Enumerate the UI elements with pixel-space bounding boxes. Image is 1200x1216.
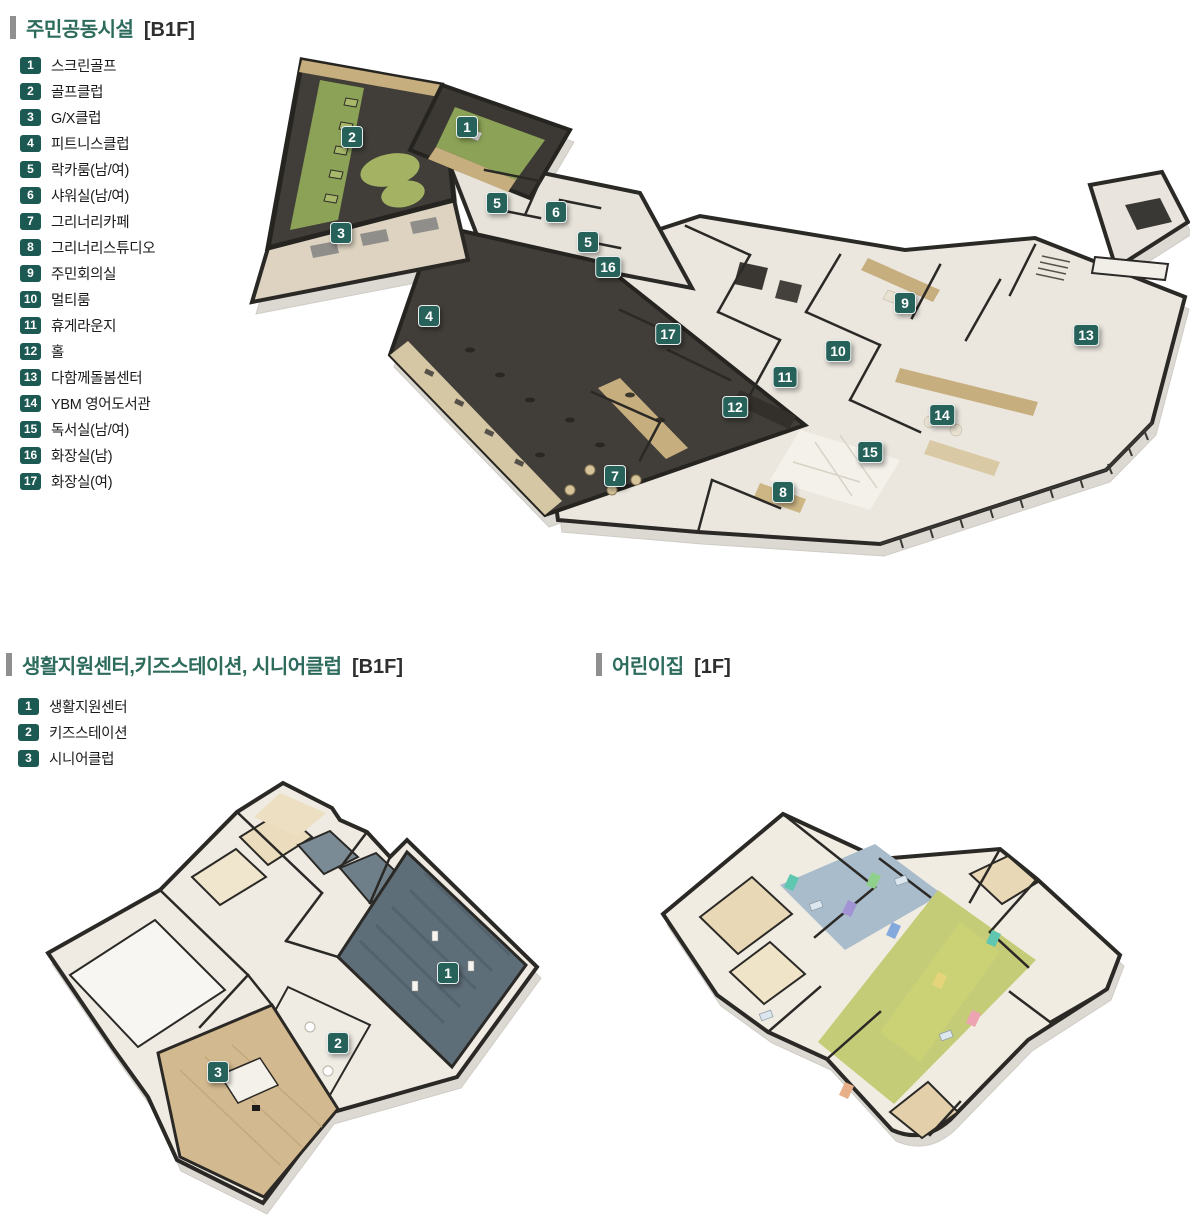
header-accent-bar (10, 16, 16, 39)
legend-number-badge: 3 (18, 750, 39, 767)
legend-number-badge: 2 (20, 83, 41, 100)
legend-item: 10 멀티룸 (20, 290, 155, 308)
plan-badge: 17 (655, 323, 681, 345)
legend-number-badge: 8 (20, 239, 41, 256)
legend-number-badge: 13 (20, 369, 41, 386)
legend-item: 2 키즈스테이션 (18, 723, 127, 741)
legend-item: 2 골프클럽 (20, 82, 155, 100)
community-floorplan-illustration (240, 50, 1190, 580)
legend-label: 키즈스테이션 (49, 722, 127, 743)
support-section-floor: [B1F] (352, 656, 403, 678)
community-floorplan: 12345651617910111213141587 (240, 50, 1190, 580)
legend-number-badge: 4 (20, 135, 41, 152)
legend-number-badge: 9 (20, 265, 41, 282)
legend-label: 그리너리카페 (51, 211, 129, 232)
community-section-header: 주민공동시설 [B1F] (10, 13, 195, 42)
plan-badge: 4 (418, 305, 440, 327)
community-section-floor: [B1F] (144, 19, 195, 41)
legend-number-badge: 16 (20, 447, 41, 464)
legend-number-badge: 14 (20, 395, 41, 412)
plan-badge: 6 (545, 201, 567, 223)
legend-label: 그리너리스튜디오 (51, 237, 155, 258)
plan-badge: 1 (437, 962, 459, 984)
legend-item: 8 그리너리스튜디오 (20, 238, 155, 256)
plan-badge: 9 (894, 292, 916, 314)
support-legend: 1 생활지원센터 2 키즈스테이션 3 시니어클럽 (18, 697, 127, 767)
plan-badge: 2 (327, 1032, 349, 1054)
header-accent-bar (596, 653, 602, 676)
plan-badge: 15 (857, 441, 883, 463)
legend-item: 3 G/X클럽 (20, 108, 155, 126)
plan-badge: 1 (456, 116, 478, 138)
legend-item: 1 스크린골프 (20, 56, 155, 74)
support-section-title: 생활지원센터,키즈스테이션, 시니어클럽 (22, 656, 341, 678)
legend-label: 시니어클럽 (49, 748, 114, 769)
legend-item: 3 시니어클럽 (18, 749, 127, 767)
legend-number-badge: 6 (20, 187, 41, 204)
legend-item: 4 피트니스클럽 (20, 134, 155, 152)
plan-badge: 16 (595, 256, 621, 278)
plan-badge: 7 (604, 465, 626, 487)
legend-label: 피트니스클럽 (51, 133, 129, 154)
legend-number-badge: 5 (20, 161, 41, 178)
legend-number-badge: 7 (20, 213, 41, 230)
plan-badge: 8 (772, 481, 794, 503)
legend-number-badge: 10 (20, 291, 41, 308)
legend-label: 화장실(남) (51, 445, 112, 466)
header-accent-bar (6, 653, 12, 676)
legend-item: 6 샤워실(남/여) (20, 186, 155, 204)
legend-label: 골프클럽 (51, 81, 103, 102)
daycare-section-header: 어린이집 [1F] (596, 650, 731, 679)
plan-badge: 14 (929, 404, 955, 426)
plan-badge: 2 (341, 126, 363, 148)
legend-label: 샤워실(남/여) (51, 185, 129, 206)
legend-label: 락카룸(남/여) (51, 159, 129, 180)
support-floorplan: 123 (40, 775, 600, 1215)
community-section-title: 주민공동시설 (26, 19, 133, 41)
daycare-floorplan-illustration (640, 782, 1160, 1212)
legend-number-badge: 15 (20, 421, 41, 438)
plan-badge: 5 (486, 192, 508, 214)
legend-item: 13 다함께돌봄센터 (20, 368, 155, 386)
support-floorplan-illustration (40, 775, 600, 1215)
legend-label: 홀 (51, 341, 64, 362)
community-legend: 1 스크린골프 2 골프클럽 3 G/X클럽 4 피트니스클럽 5 락카룸(남/… (20, 56, 155, 490)
legend-number-badge: 2 (18, 724, 39, 741)
legend-item: 15 독서실(남/여) (20, 420, 155, 438)
legend-label: YBM 영어도서관 (51, 393, 150, 414)
legend-label: 생활지원센터 (49, 696, 127, 717)
legend-label: 스크린골프 (51, 55, 116, 76)
legend-item: 7 그리너리카페 (20, 212, 155, 230)
legend-label: G/X클럽 (51, 107, 101, 128)
legend-number-badge: 17 (20, 473, 41, 490)
legend-item: 14 YBM 영어도서관 (20, 394, 155, 412)
plan-badge: 3 (330, 222, 352, 244)
legend-label: 휴게라운지 (51, 315, 116, 336)
plan-badge: 13 (1073, 324, 1099, 346)
legend-item: 12 홀 (20, 342, 155, 360)
legend-item: 11 휴게라운지 (20, 316, 155, 334)
legend-item: 1 생활지원센터 (18, 697, 127, 715)
plan-badge: 10 (825, 340, 851, 362)
support-section-header: 생활지원센터,키즈스테이션, 시니어클럽 [B1F] (6, 650, 403, 679)
legend-item: 16 화장실(남) (20, 446, 155, 464)
legend-label: 주민회의실 (51, 263, 116, 284)
plan-badge: 12 (722, 396, 748, 418)
daycare-section-title: 어린이집 (612, 656, 684, 678)
legend-label: 멀티룸 (51, 289, 90, 310)
daycare-floorplan (640, 782, 1160, 1212)
legend-number-badge: 11 (20, 317, 41, 334)
legend-label: 다함께돌봄센터 (51, 367, 142, 388)
legend-item: 9 주민회의실 (20, 264, 155, 282)
plan-badge: 5 (577, 231, 599, 253)
legend-label: 독서실(남/여) (51, 419, 129, 440)
plan-badge: 3 (207, 1061, 229, 1083)
daycare-section-floor: [1F] (694, 656, 731, 678)
legend-number-badge: 1 (20, 57, 41, 74)
legend-number-badge: 3 (20, 109, 41, 126)
legend-number-badge: 12 (20, 343, 41, 360)
legend-item: 5 락카룸(남/여) (20, 160, 155, 178)
legend-label: 화장실(여) (51, 471, 112, 492)
legend-item: 17 화장실(여) (20, 472, 155, 490)
legend-number-badge: 1 (18, 698, 39, 715)
plan-badge: 11 (773, 366, 798, 388)
